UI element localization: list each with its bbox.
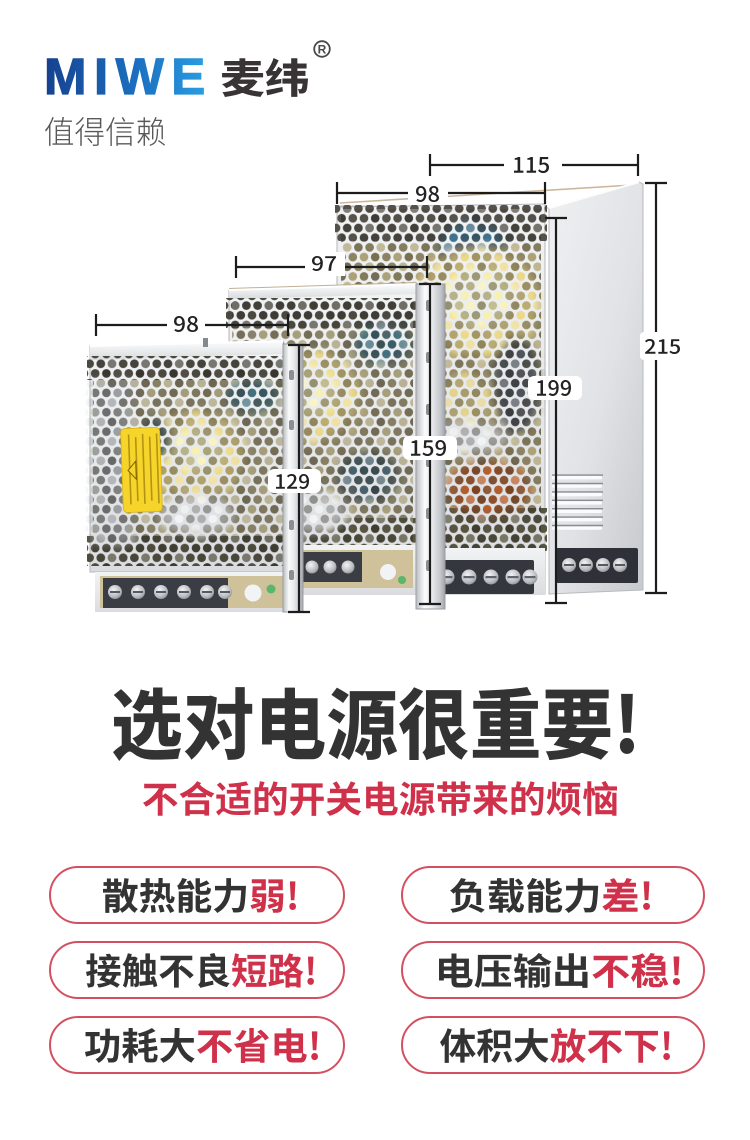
svg-text:R: R	[318, 43, 327, 57]
svg-text:MIWE: MIWE	[44, 48, 213, 105]
